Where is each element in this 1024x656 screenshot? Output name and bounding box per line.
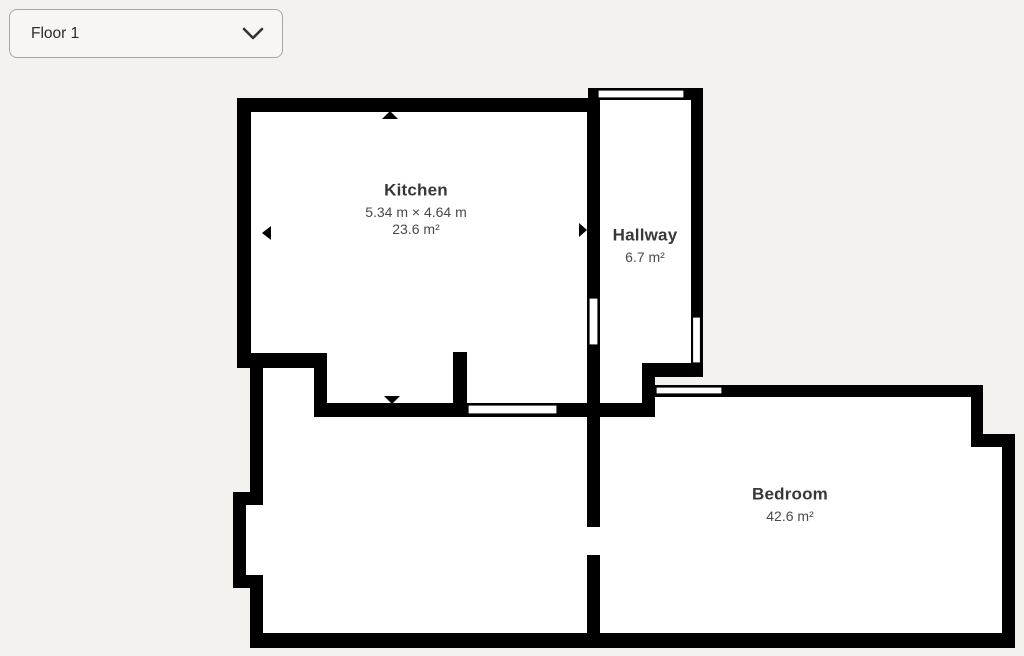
divider-wall-upper bbox=[587, 417, 600, 527]
hallway-room-label: Hallway bbox=[613, 227, 678, 244]
chevron-down-icon bbox=[242, 27, 264, 40]
kitchen-left-wall bbox=[237, 98, 251, 368]
bedroom-area-label: 42.6 m² bbox=[766, 509, 813, 523]
floorplan-viewer: Kitchen 5.34 m × 4.64 m 23.6 m² Hallway … bbox=[0, 0, 1024, 656]
kitchen-bottom-window bbox=[468, 405, 557, 414]
floor-selector-dropdown[interactable]: Floor 1 bbox=[9, 9, 283, 58]
kitchen-right-wall bbox=[587, 98, 600, 417]
kitchen-area-label: 23.6 m² bbox=[392, 222, 439, 236]
kitchen-room-label: Kitchen bbox=[384, 182, 448, 199]
hallway-area-label: 6.7 m² bbox=[625, 250, 665, 264]
bottom-outer-wall bbox=[250, 633, 1015, 648]
hallway-step-wall bbox=[642, 363, 655, 417]
kitchen-top-wall bbox=[237, 98, 600, 112]
divider-door-gap bbox=[587, 527, 600, 555]
left-wall-lower bbox=[250, 575, 263, 648]
left-wall-upper bbox=[250, 360, 263, 500]
hallway-top-window bbox=[598, 90, 684, 98]
alcove-left-wall bbox=[233, 492, 246, 588]
kitchen-dimensions-label: 5.34 m × 4.64 m bbox=[365, 205, 467, 219]
bedroom-top-window bbox=[656, 387, 722, 394]
bedroom-right-lower-wall bbox=[1002, 434, 1015, 648]
floor-plan-canvas bbox=[0, 0, 1024, 656]
kitchen-hallway-door bbox=[589, 298, 598, 345]
kitchen-stub-wall bbox=[453, 352, 467, 413]
divider-wall-lower bbox=[587, 555, 600, 633]
bedroom-room-label: Bedroom bbox=[752, 486, 828, 503]
hallway-right-window bbox=[693, 317, 701, 363]
floor-selector-value: Floor 1 bbox=[31, 25, 242, 43]
